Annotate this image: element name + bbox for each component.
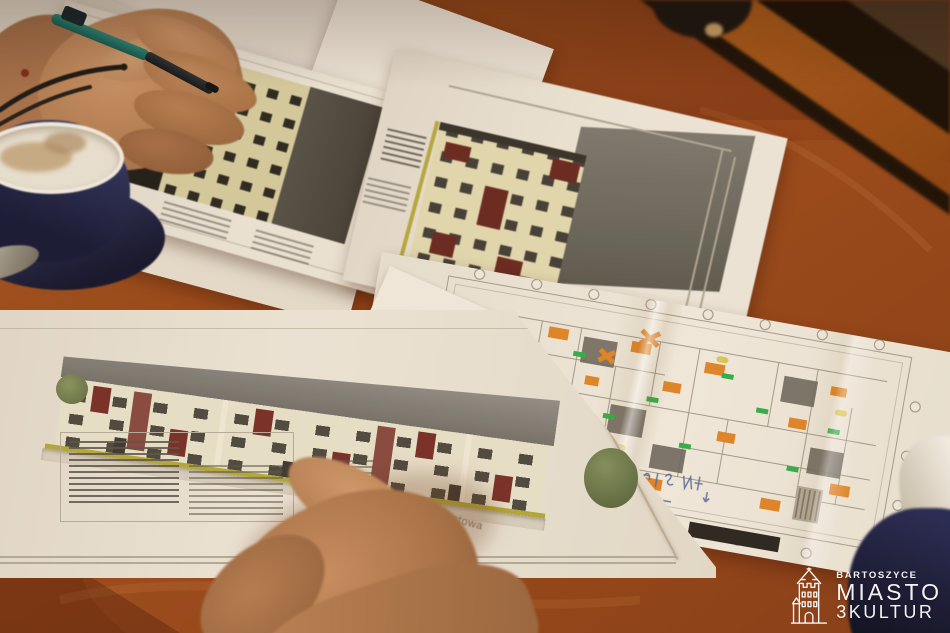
roof-band	[545, 127, 755, 292]
castle-tower-icon	[789, 567, 829, 625]
notes-text-block	[362, 177, 412, 216]
coffee-cup-left	[0, 120, 190, 320]
maroon-panel	[429, 231, 457, 258]
spec-text-block	[69, 441, 179, 507]
maroon-panel	[476, 186, 508, 230]
watermark-line2: MIASTO	[836, 581, 942, 603]
notes-text-block	[380, 128, 427, 170]
watermark: BARTOSZYCE MIASTO 3KULTUR	[789, 567, 942, 625]
coffee-stain	[44, 132, 86, 154]
watermark-text: BARTOSZYCE MIASTO 3KULTUR	[836, 570, 942, 622]
maroon-panel	[443, 142, 472, 163]
distant-hand	[705, 23, 723, 37]
watermark-line3: 3KULTUR	[836, 603, 942, 622]
maroon-panel	[549, 158, 581, 184]
hand-right	[190, 430, 620, 633]
photo-scene: Elewacja frontowa	[0, 0, 950, 633]
tree	[56, 374, 88, 404]
maroon-panel	[90, 386, 111, 414]
border-line	[0, 328, 556, 329]
